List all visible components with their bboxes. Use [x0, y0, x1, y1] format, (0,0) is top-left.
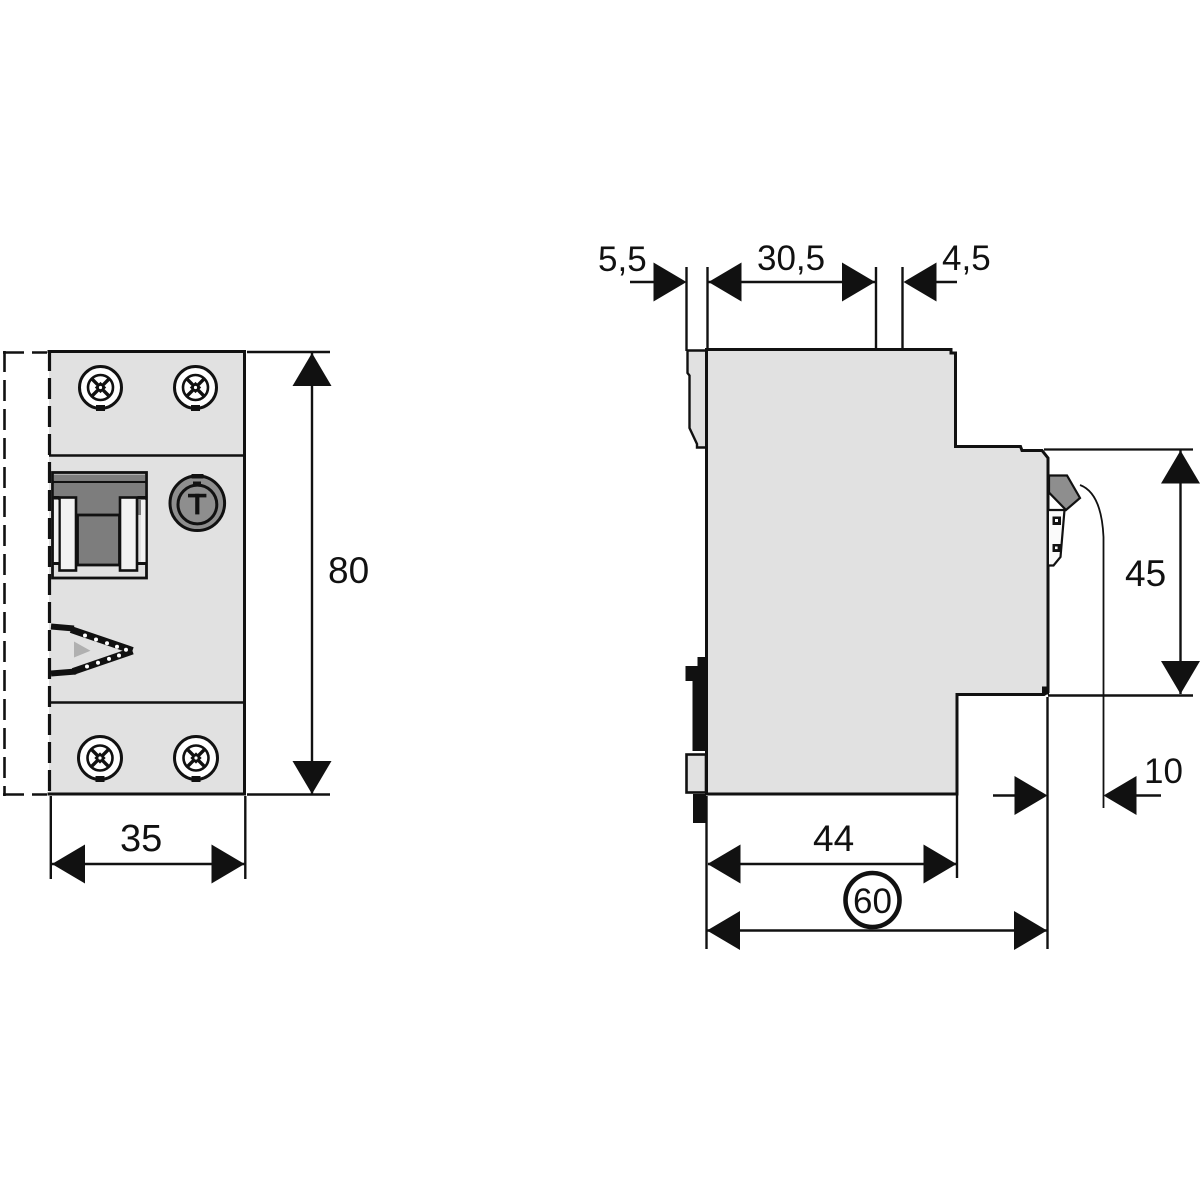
svg-text:60: 60: [853, 882, 892, 921]
svg-text:4,5: 4,5: [942, 239, 991, 278]
svg-text:35: 35: [120, 818, 162, 860]
svg-text:5,5: 5,5: [598, 240, 647, 279]
svg-text:30,5: 30,5: [757, 239, 825, 278]
svg-text:44: 44: [813, 818, 854, 859]
svg-text:10: 10: [1144, 752, 1183, 791]
svg-text:45: 45: [1125, 553, 1166, 594]
svg-text:80: 80: [328, 550, 369, 591]
